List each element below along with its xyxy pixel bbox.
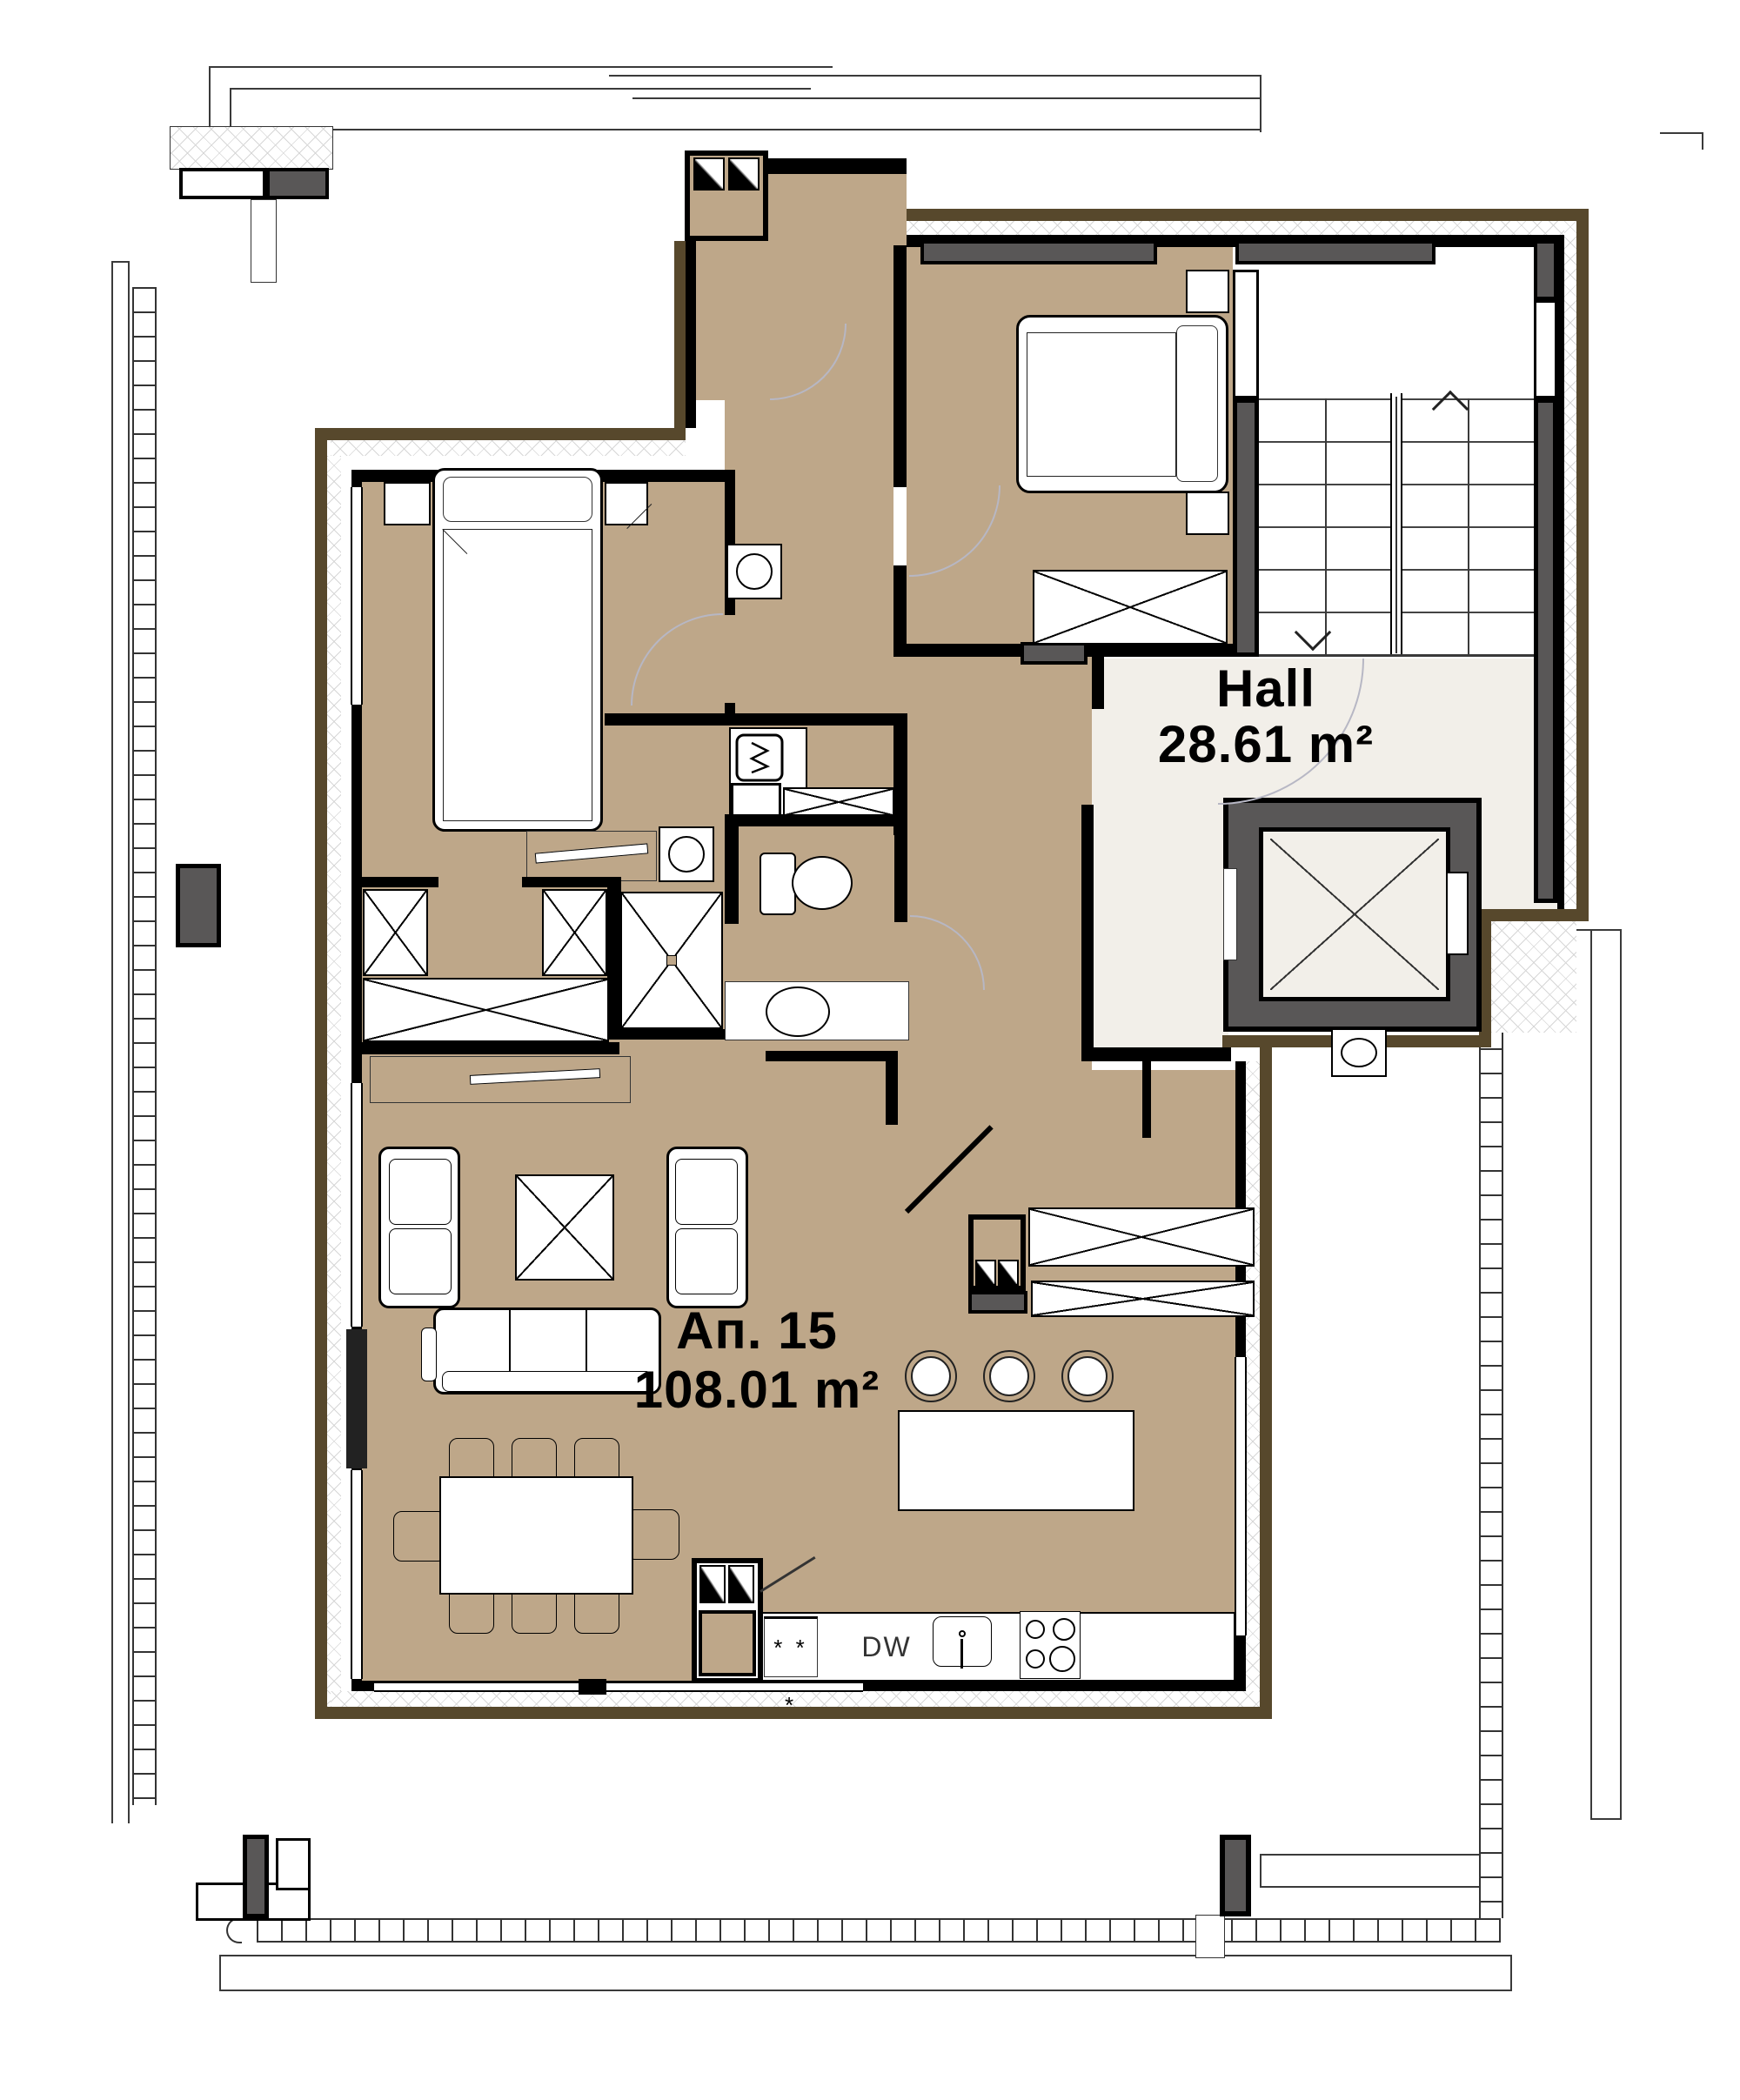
wall-bath <box>605 713 907 726</box>
balcony-railing-bottom <box>257 1918 1501 1943</box>
terrace-outline <box>1702 132 1703 150</box>
hall-name: Hall <box>1092 661 1440 717</box>
stair-pillar <box>1534 398 1557 903</box>
terrace-outline <box>1620 929 1622 1820</box>
dining-chair <box>449 1438 494 1481</box>
window <box>374 1682 579 1692</box>
terrace-column <box>179 168 266 199</box>
terrace-outline <box>219 1990 1512 1991</box>
balcony-railing-right <box>1479 951 1503 1918</box>
bed-pillow <box>1176 325 1218 482</box>
perimeter-band <box>1479 909 1589 921</box>
hall-label: Hall 28.61 m² <box>1092 661 1440 772</box>
duct-window <box>728 157 760 191</box>
refrigerator: * * * <box>764 1616 818 1677</box>
kitchen-island <box>898 1410 1134 1511</box>
bed-pillow <box>443 477 592 522</box>
wardrobe <box>542 889 607 976</box>
dining-chair <box>449 1590 494 1634</box>
wardrobe <box>363 889 428 976</box>
wall-dressing <box>522 877 619 887</box>
terrace-outline <box>1260 1886 1498 1888</box>
duct-window <box>693 157 725 191</box>
dining-chair <box>393 1511 442 1562</box>
wall <box>686 241 696 428</box>
dining-chair <box>512 1590 557 1634</box>
stove-burner <box>1049 1646 1075 1672</box>
sofa-armrest <box>421 1328 437 1381</box>
window <box>351 487 363 705</box>
stove-burner <box>1053 1618 1075 1641</box>
wall-stair-right <box>1557 235 1564 909</box>
dining-chair <box>574 1590 619 1634</box>
railing-end-cap <box>226 1917 242 1943</box>
terrace-column-block <box>170 126 333 170</box>
wall-hall-corridor <box>1081 805 1094 1048</box>
wardrobe <box>1033 570 1228 645</box>
pantry-wardrobe <box>1028 1207 1255 1267</box>
toilet-bowl <box>792 856 853 910</box>
dishwasher: DW <box>848 1615 925 1679</box>
duct-window <box>975 1260 996 1286</box>
vent-fixture <box>726 544 782 599</box>
concrete-block <box>1021 642 1087 665</box>
terrace-outline <box>171 129 1261 130</box>
railing-grid-segment <box>1195 1915 1225 1958</box>
wall-hatch <box>1246 1061 1260 1691</box>
pantry-wardrobe <box>1031 1281 1255 1317</box>
hall-area: 28.61 m² <box>1092 717 1440 772</box>
window-pier <box>346 1329 367 1468</box>
terrace-outline <box>609 75 1261 77</box>
nightstand <box>1186 492 1229 535</box>
stair-pillar <box>1534 240 1557 300</box>
floor-stair-landing <box>1259 270 1534 398</box>
terrace-outline <box>1260 75 1261 132</box>
terrace-outline <box>128 261 130 1823</box>
dining-chair <box>512 1438 557 1481</box>
wall-bath <box>725 814 907 826</box>
nightstand <box>1186 270 1229 313</box>
stair-tread-divider <box>1325 398 1327 657</box>
wall-bedroom2-left <box>893 245 907 487</box>
terrace-outline <box>209 66 211 130</box>
concrete-lintel <box>920 240 1157 264</box>
dining-table <box>439 1476 633 1595</box>
stove-burner <box>1026 1620 1045 1639</box>
perimeter-band <box>1260 1047 1272 1719</box>
wall-wc <box>725 826 739 924</box>
stair-tread-divider <box>1468 398 1469 657</box>
terrace-outline <box>1260 1854 1498 1856</box>
wall-dressing-right <box>607 877 621 1039</box>
wall-dressing <box>351 877 438 887</box>
terrace-column-stem <box>251 199 277 283</box>
bed-blanket <box>1027 332 1176 477</box>
coffee-table <box>515 1174 614 1281</box>
wall-bedroom2-left <box>893 565 907 657</box>
duct-window <box>998 1260 1019 1286</box>
floor-corridor-entry <box>893 657 1092 1072</box>
apartment-area: 108.01 m² <box>574 1361 940 1420</box>
elevator-counterweight <box>1446 872 1469 955</box>
kitchen-counter <box>759 1612 1235 1682</box>
perimeter-band <box>1576 209 1589 921</box>
perimeter-band <box>315 428 327 1719</box>
wall-hall-living <box>1081 1047 1231 1061</box>
shower-drain <box>666 955 677 966</box>
wall-hatch <box>331 1691 1270 1707</box>
stove-burner <box>1026 1649 1045 1669</box>
vent-fixture <box>659 826 714 882</box>
dining-chair <box>574 1438 619 1481</box>
terrace-outline <box>230 88 811 90</box>
terrace-column <box>266 168 329 199</box>
armchair-cushion <box>389 1228 452 1294</box>
armchair-cushion <box>675 1228 738 1294</box>
wall-hatch <box>1491 921 1576 1033</box>
sink-knob <box>959 1630 966 1637</box>
nightstand <box>605 482 648 525</box>
terrace-outline <box>1260 1854 1261 1888</box>
washing-machine-icon <box>734 732 785 783</box>
terrace-column <box>243 1835 269 1918</box>
terrace-outline <box>1590 929 1592 1820</box>
terrace-column <box>176 864 221 947</box>
concrete-lintel <box>1235 240 1435 264</box>
perimeter-band <box>315 428 686 440</box>
perimeter-band <box>674 241 686 428</box>
window <box>351 1470 363 1679</box>
terrace-outline <box>111 261 130 263</box>
wall-top-room <box>768 158 907 174</box>
shelf-cabinet <box>783 787 894 817</box>
wall-stub <box>1142 1051 1151 1138</box>
armchair-cushion <box>389 1159 452 1225</box>
duct-window <box>728 1565 754 1603</box>
bed-blanket <box>443 529 592 821</box>
stair-pillar <box>1233 398 1259 657</box>
stair-center-rail-line <box>1395 397 1397 653</box>
elevator-cab-cross <box>1270 839 1439 990</box>
wall-hatch <box>1564 221 1576 909</box>
window <box>1235 1357 1247 1635</box>
balcony-railing-left <box>132 287 157 1805</box>
terrace-outline <box>209 66 833 68</box>
apartment-label: Ап. 15 108.01 m² <box>574 1301 940 1420</box>
bar-stool <box>983 1350 1035 1402</box>
terrace-outline <box>219 1955 1512 1956</box>
floor-plan: * * * DW Hall 28.61 m² Ап. 15 108.01 m² <box>0 0 1740 2100</box>
dining-chair <box>631 1509 679 1560</box>
wardrobe <box>363 978 609 1042</box>
vent-fixture <box>1331 1028 1387 1077</box>
duct-window <box>699 1565 726 1603</box>
elevator-door <box>1223 868 1237 960</box>
window <box>351 1083 363 1327</box>
nightstand <box>384 482 431 525</box>
concrete-block <box>968 1291 1027 1314</box>
perimeter-band <box>907 209 1589 221</box>
window-pier <box>579 1679 606 1695</box>
wall-shower <box>608 1029 737 1040</box>
terrace-outline <box>632 97 1261 99</box>
floor-hall <box>1092 803 1228 1047</box>
terrace-outline <box>230 88 231 130</box>
terrace-outline <box>1590 1818 1622 1820</box>
wall-hatch <box>907 221 1576 235</box>
stair-bottom-edge <box>1259 654 1534 657</box>
wall-hatch <box>331 440 686 456</box>
stair-wall <box>1534 300 1557 398</box>
wall-hatch <box>327 456 341 1707</box>
terrace-column <box>1220 1835 1251 1916</box>
wall-wc <box>894 826 907 922</box>
wall-dressing-bottom <box>351 1042 619 1054</box>
apartment-name: Ап. 15 <box>574 1301 940 1361</box>
wall-kitchen <box>886 1051 898 1125</box>
duct-base <box>699 1610 756 1676</box>
wall-kitchen <box>766 1051 887 1061</box>
sink-faucet <box>960 1639 963 1669</box>
terrace-outline <box>1510 1955 1512 1991</box>
bar-stool <box>1061 1350 1114 1402</box>
terrace-outline <box>111 261 113 1823</box>
toilet-tank <box>760 853 796 915</box>
terrace-column-base <box>276 1838 311 1890</box>
washbasin <box>766 986 830 1037</box>
armchair-cushion <box>675 1159 738 1225</box>
terrace-outline <box>1660 132 1703 134</box>
stair-wall <box>1233 270 1259 398</box>
terrace-outline <box>219 1955 221 1991</box>
